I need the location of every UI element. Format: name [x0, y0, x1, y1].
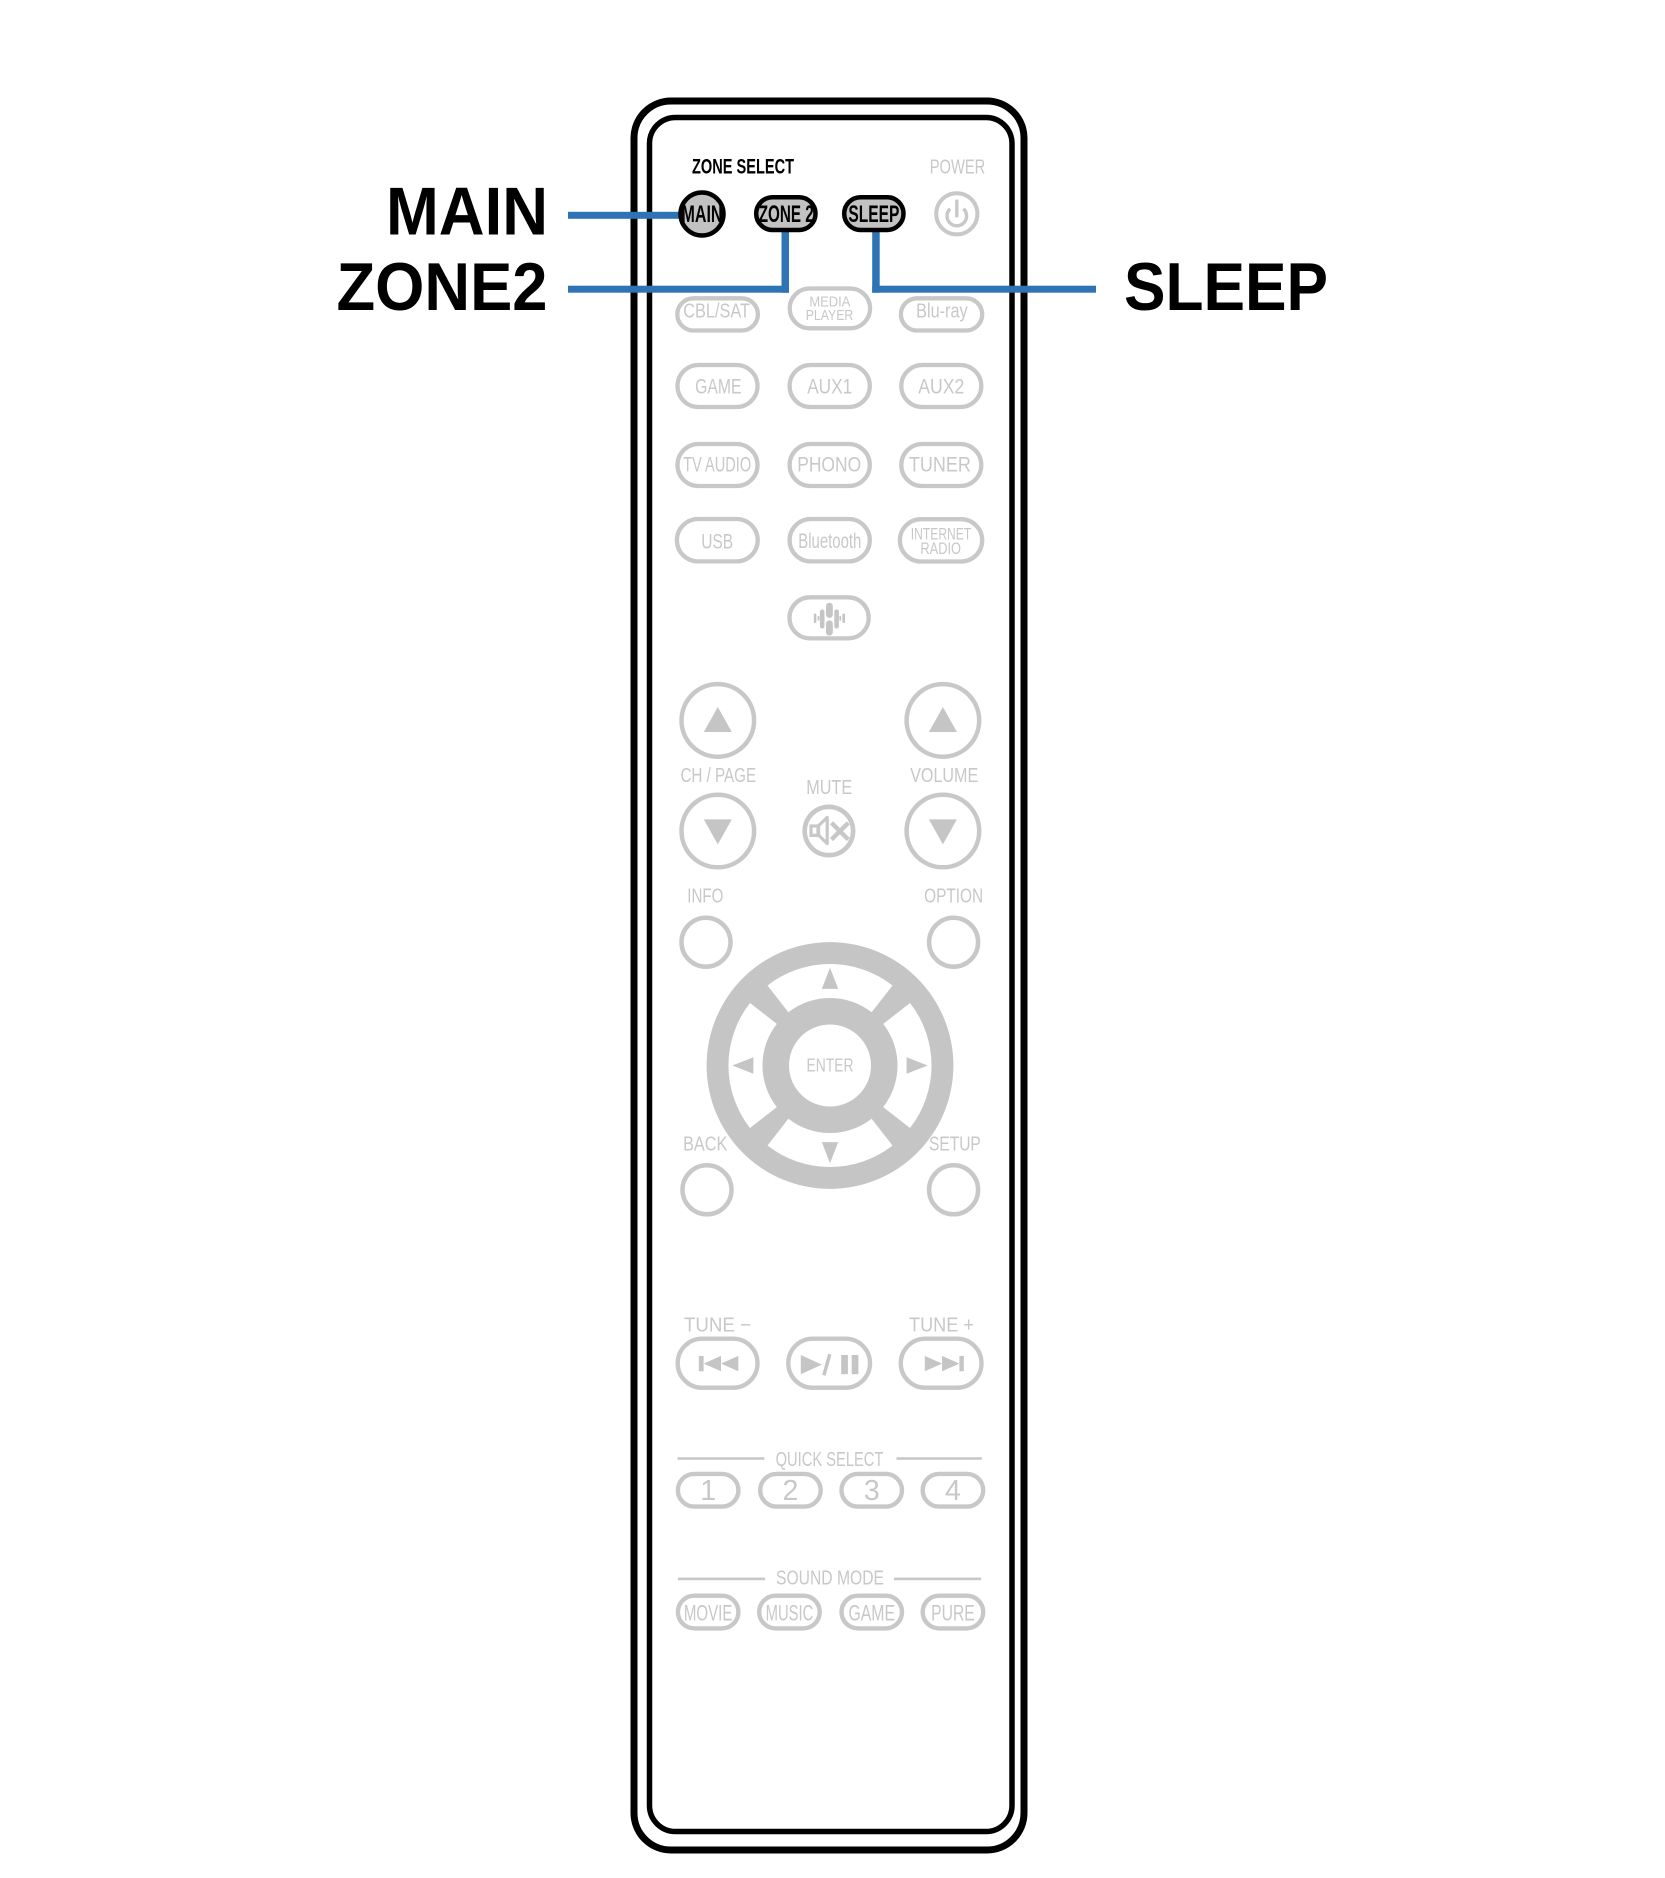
svg-text:SETUP: SETUP	[929, 1134, 981, 1156]
svg-text:GAME: GAME	[848, 1601, 895, 1626]
svg-text:SOUND MODE: SOUND MODE	[776, 1568, 884, 1590]
svg-text:CBL/SAT: CBL/SAT	[683, 301, 750, 323]
svg-text:OPTION: OPTION	[924, 886, 983, 908]
svg-text:ZONE 2: ZONE 2	[759, 201, 814, 228]
svg-text:PURE: PURE	[931, 1601, 975, 1626]
svg-text:RADIO: RADIO	[920, 540, 961, 558]
svg-text:4: 4	[945, 1475, 961, 1507]
svg-text:TUNE −: TUNE −	[684, 1315, 751, 1337]
svg-text:ENTER: ENTER	[807, 1056, 854, 1076]
svg-text:CH / PAGE: CH / PAGE	[680, 765, 756, 787]
svg-text:AUX1: AUX1	[807, 374, 852, 398]
svg-text:SLEEP: SLEEP	[1124, 249, 1328, 325]
svg-text:POWER: POWER	[930, 157, 986, 179]
svg-text:BACK: BACK	[683, 1134, 728, 1156]
svg-text:TUNE +: TUNE +	[909, 1315, 974, 1337]
svg-text:INFO: INFO	[687, 886, 723, 908]
svg-text:MOVIE: MOVIE	[684, 1601, 733, 1626]
svg-text:MAIN: MAIN	[386, 174, 548, 250]
svg-text:TUNER: TUNER	[909, 453, 971, 477]
svg-text:1: 1	[700, 1475, 716, 1507]
svg-text:GAME: GAME	[695, 374, 741, 398]
svg-text:MUTE: MUTE	[806, 777, 852, 799]
svg-text:MUSIC: MUSIC	[766, 1601, 814, 1626]
svg-text:ZONE SELECT: ZONE SELECT	[692, 156, 794, 179]
svg-text:3: 3	[864, 1475, 880, 1507]
svg-text:QUICK SELECT: QUICK SELECT	[776, 1449, 884, 1471]
svg-text:USB: USB	[701, 529, 733, 553]
svg-text:Blu-ray: Blu-ray	[916, 301, 968, 323]
svg-text:2: 2	[783, 1475, 799, 1507]
svg-text:VOLUME: VOLUME	[910, 765, 978, 787]
svg-text:PHONO: PHONO	[797, 453, 861, 477]
svg-text:TV AUDIO: TV AUDIO	[683, 453, 751, 477]
svg-text:SLEEP: SLEEP	[848, 201, 899, 228]
svg-text:AUX2: AUX2	[918, 374, 964, 398]
svg-text:ZONE2: ZONE2	[337, 249, 548, 325]
svg-text:Bluetooth: Bluetooth	[798, 529, 861, 553]
svg-text:MAIN: MAIN	[682, 201, 723, 228]
svg-text:PLAYER: PLAYER	[806, 308, 854, 324]
